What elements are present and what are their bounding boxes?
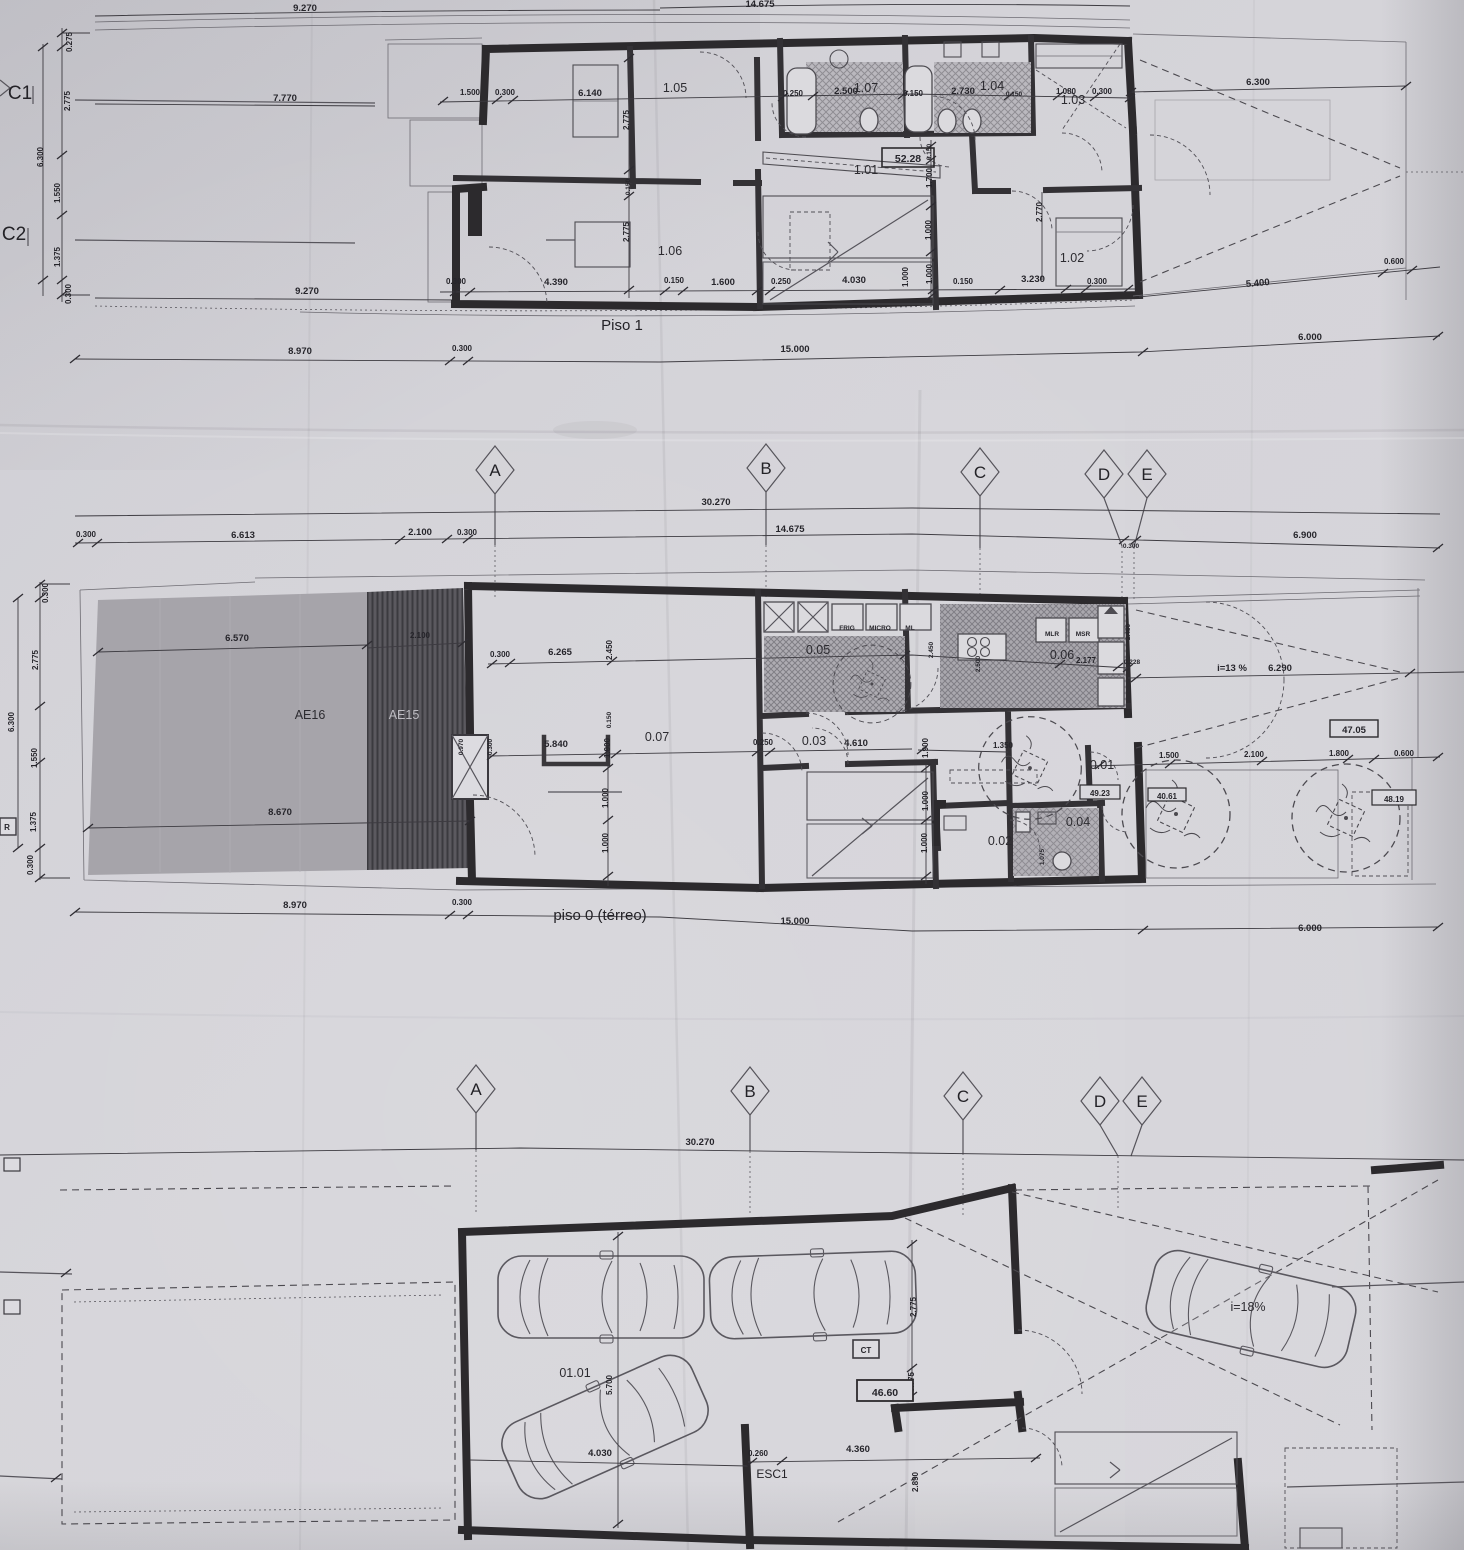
dim-label: 0.300 (1092, 87, 1113, 96)
dim-label: 1.350 (993, 741, 1014, 750)
dim-label: 1.800 (1329, 749, 1350, 758)
area-box-47-05: 47.05 (1330, 720, 1378, 737)
dim-label: 6.300 (36, 146, 45, 167)
dim-label: 1.000 (925, 263, 934, 284)
area-box-40-61: 40.61 (1148, 788, 1186, 801)
grid-label-c1: C1 (8, 83, 32, 104)
room-label-0-03: 0.03 (802, 734, 826, 748)
dim-label: 0.150 (1006, 91, 1023, 98)
plan-title-piso0: piso 0 (térreo) (553, 907, 646, 924)
dim-label: 2.450 (605, 639, 614, 660)
car-icon (498, 1251, 704, 1343)
appliance-label-mlr: MLR (1045, 631, 1059, 638)
dim-label: 6.300 (7, 711, 16, 732)
room-label-01-01: 01.01 (559, 1366, 590, 1380)
dim-label: 0.250 (771, 277, 792, 286)
dim-label: 0.300 (495, 88, 516, 97)
dim-label: 15.000 (780, 344, 809, 355)
wall-stub (468, 188, 482, 236)
room-label-0-07: 0.07 (645, 730, 669, 744)
dim-label: 4.610 (844, 738, 868, 749)
dim-label: 4.390 (544, 277, 568, 288)
dim-label: 8.670 (268, 807, 292, 818)
area-box-49-23: 49.23 (1080, 785, 1120, 799)
dim-label: 2.775 (63, 90, 72, 111)
svg-text:CT: CT (861, 1346, 872, 1355)
dim-label: 1.375 (53, 246, 62, 267)
dim-label: 2.500 (975, 655, 982, 672)
dim-label: 1.550 (30, 747, 39, 768)
dim-label: 0.300 (452, 344, 473, 353)
dim-label: 2.450 (928, 641, 935, 658)
room-label-0-06: 0.06 (1050, 648, 1074, 662)
room-label-1-02: 1.02 (1060, 251, 1084, 265)
ct-box: CT (853, 1340, 879, 1358)
dim-label: 0.250 (783, 89, 804, 98)
dim-label: 0.600 (1384, 257, 1405, 266)
kitchen-006: MLR MSR (940, 604, 1126, 708)
svg-text:48.19: 48.19 (1384, 795, 1405, 804)
dim-label: 6.265 (548, 647, 572, 658)
dim-label: 0.300 (1123, 543, 1140, 550)
dim-label: 6.000 (1298, 332, 1322, 343)
dim-label: 0.300 (457, 528, 478, 537)
dim-label: 1.000 (601, 787, 610, 808)
dim-label: 6.300 (1246, 77, 1270, 88)
svg-text:C: C (974, 463, 986, 482)
dim-label: 4.030 (588, 1448, 612, 1459)
dim-label: 0.300 (64, 283, 73, 304)
dim-label: 0.150 (953, 277, 974, 286)
dim-label: 1.500 (1159, 751, 1180, 760)
dim-label: 0.300 (446, 277, 467, 286)
dim-label: 3.230 (1021, 274, 1045, 285)
dim-label: 1.900 (921, 737, 930, 758)
appliance-label-micro: MICRO (869, 625, 891, 632)
dim-label: 2.450 (1125, 623, 1132, 640)
svg-text:46.60: 46.60 (872, 1387, 898, 1399)
dim-label: 2.177 (1076, 656, 1097, 665)
room-label-1-06: 1.06 (658, 244, 682, 258)
svg-text:A: A (489, 461, 501, 480)
dim-label: 6.900 (1293, 530, 1317, 541)
dim-label: 2.730 (951, 86, 975, 97)
room-label-1-03: 1.03 (1061, 93, 1085, 107)
dim-label: 14.675 (745, 0, 775, 10)
dim-label: 0.300 (487, 738, 494, 755)
dim-label: 5.840 (544, 739, 568, 750)
dim-label: 0.260 (748, 1449, 769, 1458)
dim-label: 6.290 (1268, 663, 1292, 674)
svg-text:A: A (470, 1080, 482, 1099)
plan-title-piso1: Piso 1 (601, 317, 643, 334)
dim-label: 0.250 (753, 738, 774, 747)
dim-label: 1.000 (601, 832, 610, 853)
dim-label: 5.700 (605, 1374, 614, 1395)
area-box-48-19: 48.19 (1372, 790, 1416, 805)
dim-label: 14.675 (775, 524, 805, 535)
dim-label: 1.600 (711, 277, 735, 288)
dim-label: 0.300 (41, 582, 50, 603)
floorplan-drawing: C1 C2 0.275 2.775 6.300 1.550 1.375 0.30… (0, 0, 1464, 1550)
dim-label: 1.000 (920, 832, 929, 853)
dim-label: 0.300 (1087, 277, 1108, 286)
dim-label: 0.300 (26, 854, 35, 875)
zone-label-ae15: AE15 (389, 708, 420, 722)
ramp-slope-label: i=18% (1230, 1300, 1265, 1314)
dim-label: 0.150 (926, 143, 933, 160)
dim-label: 1.000 (901, 266, 910, 287)
dim-label: 2.100 (408, 527, 432, 538)
room-label-0-04: 0.04 (1066, 815, 1090, 829)
dim-label: 0.300 (76, 530, 97, 539)
svg-text:E: E (1141, 465, 1152, 484)
dim-label: 6.140 (578, 88, 602, 99)
appliance-label-frig: FRIG (839, 625, 855, 632)
svg-text:D: D (1094, 1092, 1106, 1111)
dim-label: 0.150 (664, 276, 685, 285)
dim-label: 2.100 (410, 631, 431, 640)
toilet-icon (1053, 852, 1071, 870)
area-box-46-60: 46.60 (857, 1380, 913, 1401)
car-icon (708, 1245, 917, 1344)
appliance-label-ml: ML (905, 625, 914, 632)
dim-label: 9.270 (293, 3, 317, 14)
dim-label: 0.970 (458, 738, 465, 755)
svg-text:52.28: 52.28 (895, 153, 921, 165)
dim-label: 0.150 (625, 178, 632, 195)
dim-label: 1.700 (925, 167, 934, 188)
room-label-1-05: 1.05 (663, 81, 687, 95)
dim-label: 1.000 (921, 790, 930, 811)
dim-label: 8.970 (288, 346, 312, 357)
dim-label: 2.890 (911, 1471, 920, 1492)
room-label-1-01: 1.01 (854, 163, 878, 177)
room-label-1-04: 1.04 (980, 79, 1004, 93)
appliance-label-msr: MSR (1076, 631, 1091, 638)
dim-label: 30.270 (685, 1137, 714, 1148)
room-label-0-02: 0.02 (988, 834, 1012, 848)
room-label-0-05: 0.05 (806, 643, 830, 657)
svg-text:49.23: 49.23 (1090, 789, 1111, 798)
dim-label: 4.360 (846, 1444, 870, 1455)
dim-label: 2.775 (622, 109, 631, 130)
dim-label: 6.570 (225, 633, 249, 644)
svg-text:47.05: 47.05 (1342, 725, 1366, 736)
dim-label: 2.775 (622, 221, 631, 242)
dim-label: 0.275 (65, 31, 74, 52)
room-label-1-07: 1.07 (854, 81, 878, 95)
svg-text:D: D (1098, 465, 1110, 484)
dim-label: 7.770 (273, 93, 297, 104)
grid-edge-label-r: R (0, 818, 16, 835)
dim-label: 2.770 (1035, 201, 1044, 222)
dim-label: 15.000 (780, 916, 809, 927)
dim-label: 1.075 (1039, 848, 1046, 865)
dim-label: 1.000 (924, 219, 933, 240)
dim-label: 1.500 (460, 88, 481, 97)
dim-label: 0.300 (490, 650, 511, 659)
dim-label: 0.600 (1394, 749, 1415, 758)
dim-label: 0.300 (452, 898, 473, 907)
svg-text:E: E (1136, 1092, 1147, 1111)
dim-label: 8.970 (283, 900, 307, 911)
stair-label-esc1: ESC1 (756, 1467, 788, 1481)
svg-text:B: B (744, 1082, 755, 1101)
scanned-floorplan-sheet: C1 C2 0.275 2.775 6.300 1.550 1.375 0.30… (0, 0, 1464, 1550)
svg-text:B: B (760, 459, 771, 478)
dim-label: 30.270 (701, 497, 730, 508)
dim-label: 1.375 (29, 811, 38, 832)
dim-label: 2.100 (1244, 750, 1265, 759)
ramp-slope-label: i=13 % (1217, 663, 1247, 674)
dim-label: 4.030 (842, 275, 866, 286)
dim-label: 1.550 (53, 182, 62, 203)
dim-label: 6.613 (231, 530, 255, 541)
svg-text:R: R (4, 823, 10, 832)
dim-label: 0.150 (903, 89, 924, 98)
dim-label: 0.150 (606, 711, 613, 728)
dim-label: 5.400 (1245, 277, 1270, 290)
grid-label-c2: C2 (2, 224, 26, 245)
dim-label: 6.000 (1298, 923, 1322, 934)
dim-label: 1.900 (603, 737, 612, 758)
svg-text:40.61: 40.61 (1157, 792, 1178, 801)
room-label-0-01: 0.01 (1090, 758, 1114, 772)
zone-label-ae16: AE16 (295, 708, 326, 722)
dim-label: 9.270 (295, 286, 319, 297)
dim-label: 0.228 (1124, 659, 1141, 666)
dim-label: 2.775 (31, 649, 40, 670)
dim-label: 2.775 (909, 1296, 918, 1317)
svg-text:C: C (957, 1087, 969, 1106)
